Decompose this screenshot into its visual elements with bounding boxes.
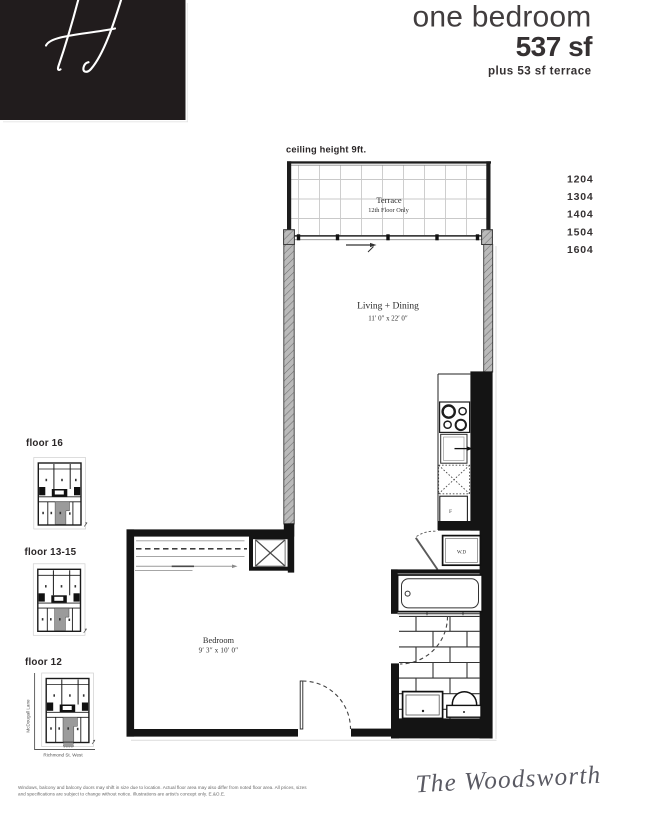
svg-text:1504: 1504 xyxy=(567,226,594,238)
svg-text:Terrace: Terrace xyxy=(376,195,402,205)
svg-text:W.D: W.D xyxy=(457,551,467,556)
svg-text:Richmond St. West: Richmond St. West xyxy=(43,753,83,758)
svg-text:McDougall Lane: McDougall Lane xyxy=(26,699,31,733)
svg-text:1304: 1304 xyxy=(567,191,594,203)
svg-text:Living + Dining: Living + Dining xyxy=(357,302,419,312)
svg-text:11′ 0″ x 22′ 0″: 11′ 0″ x 22′ 0″ xyxy=(368,316,408,323)
svg-text:floor 13-15: floor 13-15 xyxy=(25,547,77,558)
svg-text:F: F xyxy=(449,509,452,515)
svg-text:1404: 1404 xyxy=(567,209,594,221)
svg-text:ceiling height 9ft.: ceiling height 9ft. xyxy=(286,145,366,155)
svg-text:plus 53 sf terrace: plus 53 sf terrace xyxy=(488,65,592,78)
svg-text:Windows, balcony and balcony d: Windows, balcony and balcony doors may s… xyxy=(18,785,307,790)
svg-text:floor 16: floor 16 xyxy=(26,438,63,449)
svg-text:one bedroom: one bedroom xyxy=(413,1,592,34)
svg-text:537 sf: 537 sf xyxy=(516,31,594,62)
svg-text:Bedroom: Bedroom xyxy=(203,636,235,645)
svg-text:1204: 1204 xyxy=(567,174,594,186)
svg-text:and specifications are subject: and specifications are subject to change… xyxy=(18,792,225,797)
svg-text:9′ 3″ x 10′ 0″: 9′ 3″ x 10′ 0″ xyxy=(199,647,239,655)
svg-text:12th Floor Only: 12th Floor Only xyxy=(368,207,409,214)
svg-text:floor 12: floor 12 xyxy=(25,657,62,668)
svg-text:1604: 1604 xyxy=(567,244,594,256)
